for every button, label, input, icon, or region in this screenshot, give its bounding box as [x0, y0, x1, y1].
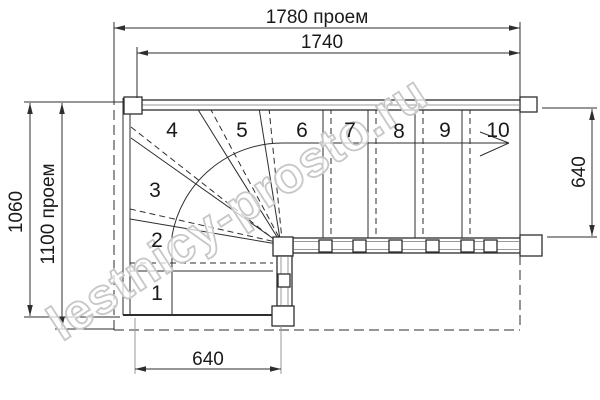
dim-label-right-flight-width: 640: [569, 156, 590, 188]
staircase-plan-drawing: lestnicy-prosto.ru 1780 проем 1740 1060 …: [0, 0, 600, 400]
baluster: [278, 274, 290, 287]
step-number-10: 10: [486, 119, 509, 142]
step-number-1: 1: [151, 282, 163, 305]
dim-label-top-opening: 1780 проем: [266, 7, 369, 28]
dimension-top-stair-width: [137, 47, 520, 98]
plan-canvas: lestnicy-prosto.ru 1780 проем 1740 1060 …: [0, 0, 600, 400]
baluster: [461, 240, 474, 252]
baluster: [353, 240, 366, 252]
baluster: [484, 240, 497, 252]
lower-end-post: [272, 306, 294, 326]
dim-label-top-stair-width: 1740: [301, 32, 343, 53]
dim-label-bottom-step-width: 640: [192, 349, 224, 370]
dim-label-left-opening: 1100 проем: [38, 163, 59, 264]
top-left-newel-post: [124, 97, 142, 114]
step-number-4: 4: [166, 119, 178, 142]
baluster: [426, 240, 439, 252]
dim-label-left-overall: 1060: [6, 191, 27, 233]
step-number-5: 5: [236, 119, 248, 142]
baluster: [389, 240, 402, 252]
step-number-3: 3: [149, 179, 161, 202]
step-number-6: 6: [296, 119, 308, 142]
center-newel-post: [273, 237, 293, 256]
top-rail-end-cap: [520, 97, 537, 112]
bottom-handrail: [293, 235, 542, 256]
bottom-rail-end-post: [520, 235, 542, 256]
step-number-2: 2: [151, 229, 163, 252]
center-rail: [272, 237, 294, 326]
baluster: [319, 240, 332, 252]
step-number-9: 9: [439, 119, 451, 142]
step-number-8: 8: [393, 120, 405, 143]
step-number-7: 7: [344, 119, 356, 142]
